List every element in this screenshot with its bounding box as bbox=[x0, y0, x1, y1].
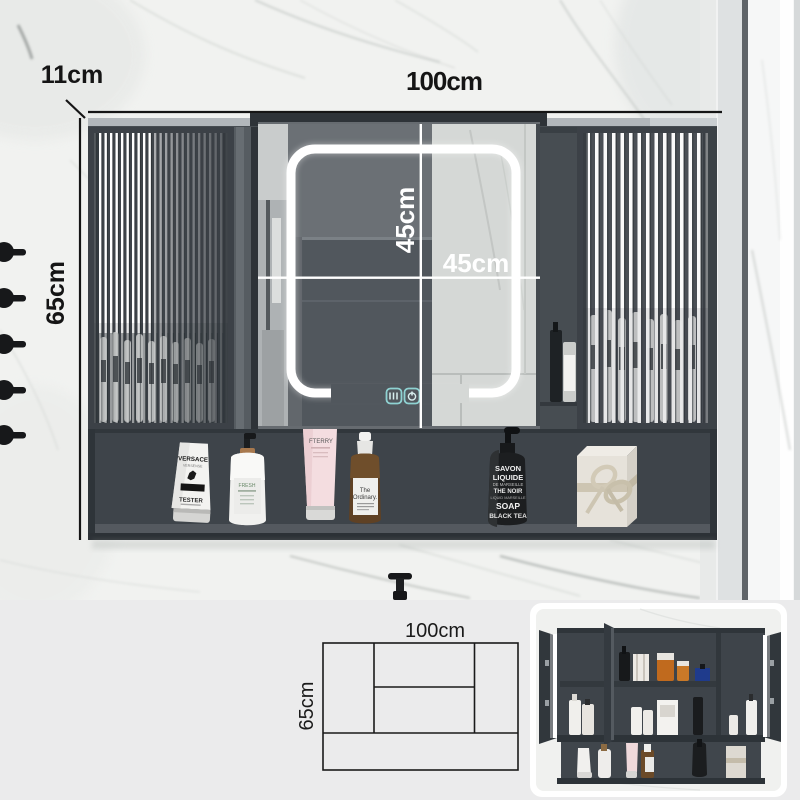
svg-text:11cm: 11cm bbox=[41, 61, 104, 89]
svg-text:65cm: 65cm bbox=[42, 261, 70, 325]
svg-text:100cm: 100cm bbox=[406, 66, 482, 96]
svg-text:LIQUIDE: LIQUIDE bbox=[493, 473, 523, 482]
svg-text:SAVON: SAVON bbox=[495, 464, 521, 473]
svg-text:100cm: 100cm bbox=[405, 620, 465, 642]
svg-text:FRESH: FRESH bbox=[239, 483, 256, 489]
svg-text:DE MARSEILLE: DE MARSEILLE bbox=[493, 482, 524, 487]
svg-text:45cm: 45cm bbox=[443, 248, 510, 278]
svg-text:THE NOIR: THE NOIR bbox=[494, 489, 523, 495]
svg-text:BLACK TEA: BLACK TEA bbox=[489, 513, 527, 520]
svg-text:The: The bbox=[360, 488, 371, 494]
svg-text:45cm: 45cm bbox=[390, 187, 420, 254]
svg-text:LIQUID MARSEILLE: LIQUID MARSEILLE bbox=[490, 496, 525, 500]
svg-text:FTERRY: FTERRY bbox=[309, 439, 333, 445]
svg-text:TESTER: TESTER bbox=[179, 497, 204, 504]
svg-text:SOAP: SOAP bbox=[496, 501, 520, 511]
svg-text:65cm: 65cm bbox=[296, 682, 318, 731]
svg-text:Ordinary.: Ordinary. bbox=[353, 495, 378, 501]
